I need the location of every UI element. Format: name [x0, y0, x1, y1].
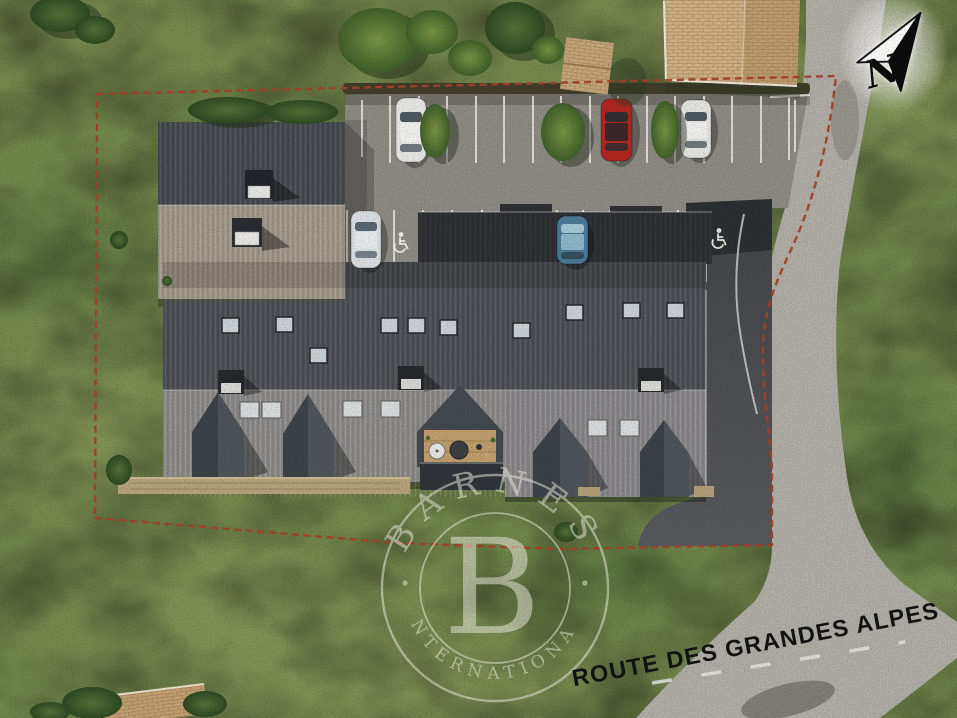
photo-grain-light [0, 0, 957, 718]
site-plan-rendering: BARNES B INTERNATIONAL ROUTE DES GRANDES… [0, 0, 957, 718]
site-plan-svg: BARNES B INTERNATIONAL ROUTE DES GRANDES… [0, 0, 957, 718]
